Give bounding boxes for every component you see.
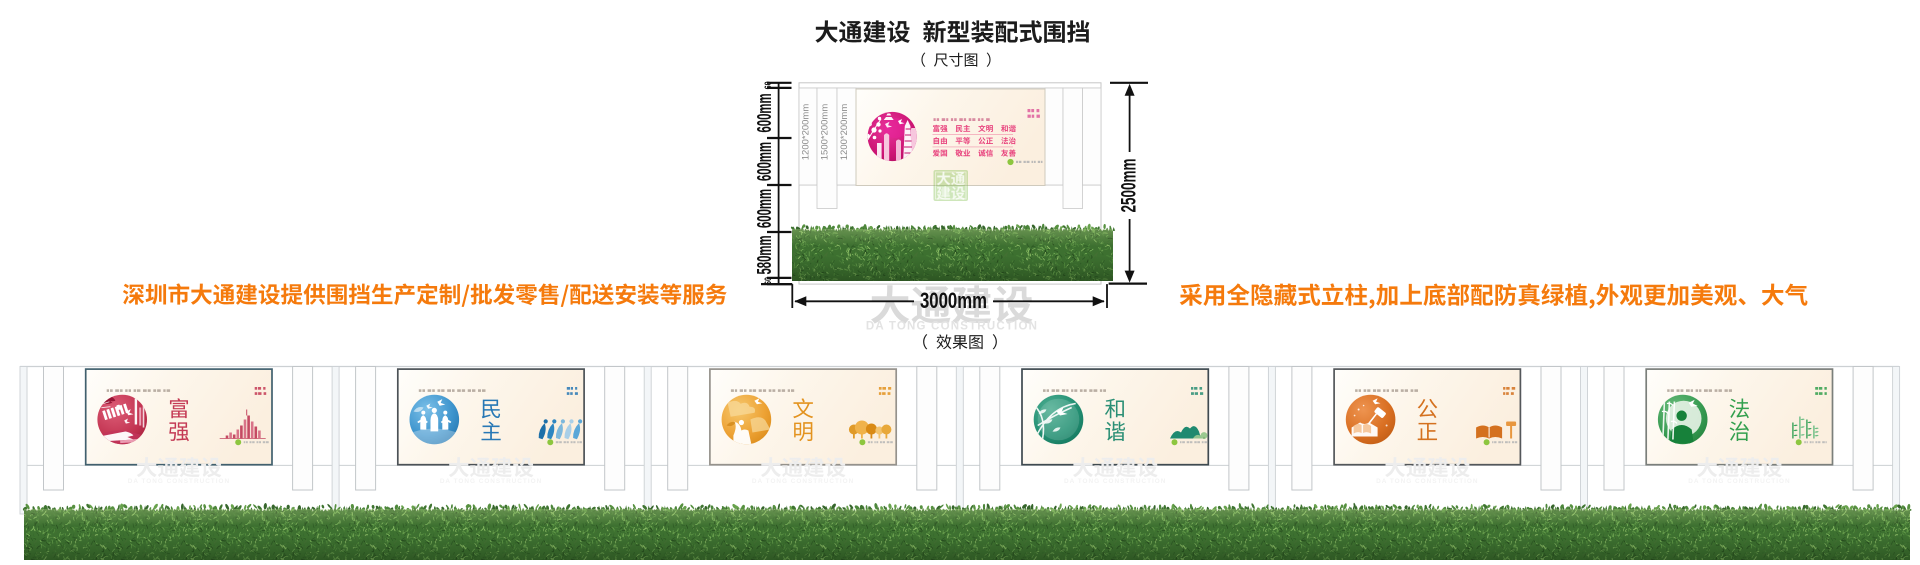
svg-text:DA TONG CONSTRUCTION: DA TONG CONSTRUCTION xyxy=(1064,478,1166,485)
svg-text:600mm: 600mm xyxy=(754,189,776,228)
svg-text:1200*200mm: 1200*200mm xyxy=(801,104,812,161)
svg-text:600mm: 600mm xyxy=(754,94,776,133)
svg-text:2500mm: 2500mm xyxy=(1117,159,1141,213)
svg-text:DA TONG CONSTRUCTION: DA TONG CONSTRUCTION xyxy=(752,478,854,485)
svg-text:60: 60 xyxy=(763,81,774,89)
svg-text:DA TONG CONSTRUCTION: DA TONG CONSTRUCTION xyxy=(1376,478,1478,485)
svg-text:580mm: 580mm xyxy=(754,236,776,275)
svg-text:DA TONG CONSTRUCTION: DA TONG CONSTRUCTION xyxy=(440,478,542,485)
svg-text:DA TONG CONSTRUCTION: DA TONG CONSTRUCTION xyxy=(128,478,230,485)
svg-text:1500*200mm: 1500*200mm xyxy=(820,104,831,161)
svg-text:1200*200mm: 1200*200mm xyxy=(839,104,850,161)
svg-text:3000mm: 3000mm xyxy=(920,288,987,313)
svg-text:DA TONG CONSTRUCTION: DA TONG CONSTRUCTION xyxy=(1688,478,1790,485)
svg-text:DA TONG CONSTRUCTION: DA TONG CONSTRUCTION xyxy=(866,321,1038,333)
svg-text:600mm: 600mm xyxy=(754,142,776,181)
